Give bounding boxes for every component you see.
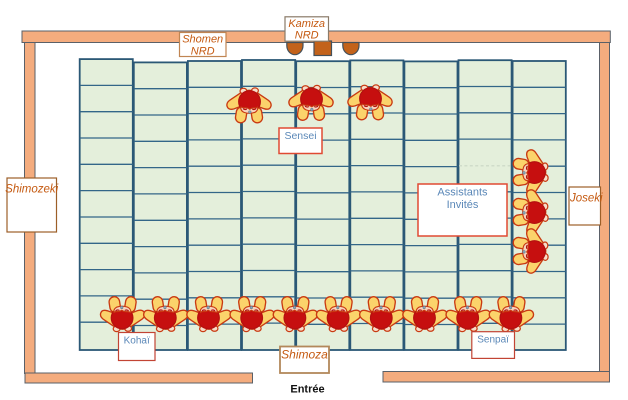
svg-text:Invités: Invités <box>447 199 479 211</box>
svg-text:Senpaï: Senpaï <box>477 335 509 346</box>
svg-text:NRD: NRD <box>295 30 319 42</box>
svg-text:Kamiza: Kamiza <box>288 18 325 30</box>
svg-text:NRD: NRD <box>191 45 215 57</box>
svg-text:Kohaï: Kohaï <box>124 336 150 347</box>
svg-text:Sensei: Sensei <box>284 130 316 142</box>
svg-text:Entrée: Entrée <box>290 384 324 396</box>
svg-text:Shimoza: Shimoza <box>281 348 328 362</box>
svg-text:Joseki: Joseki <box>569 193 603 205</box>
svg-text:Shomen: Shomen <box>182 34 223 46</box>
svg-text:Shimozeki: Shimozeki <box>5 184 58 196</box>
svg-text:Assistants: Assistants <box>437 187 488 199</box>
